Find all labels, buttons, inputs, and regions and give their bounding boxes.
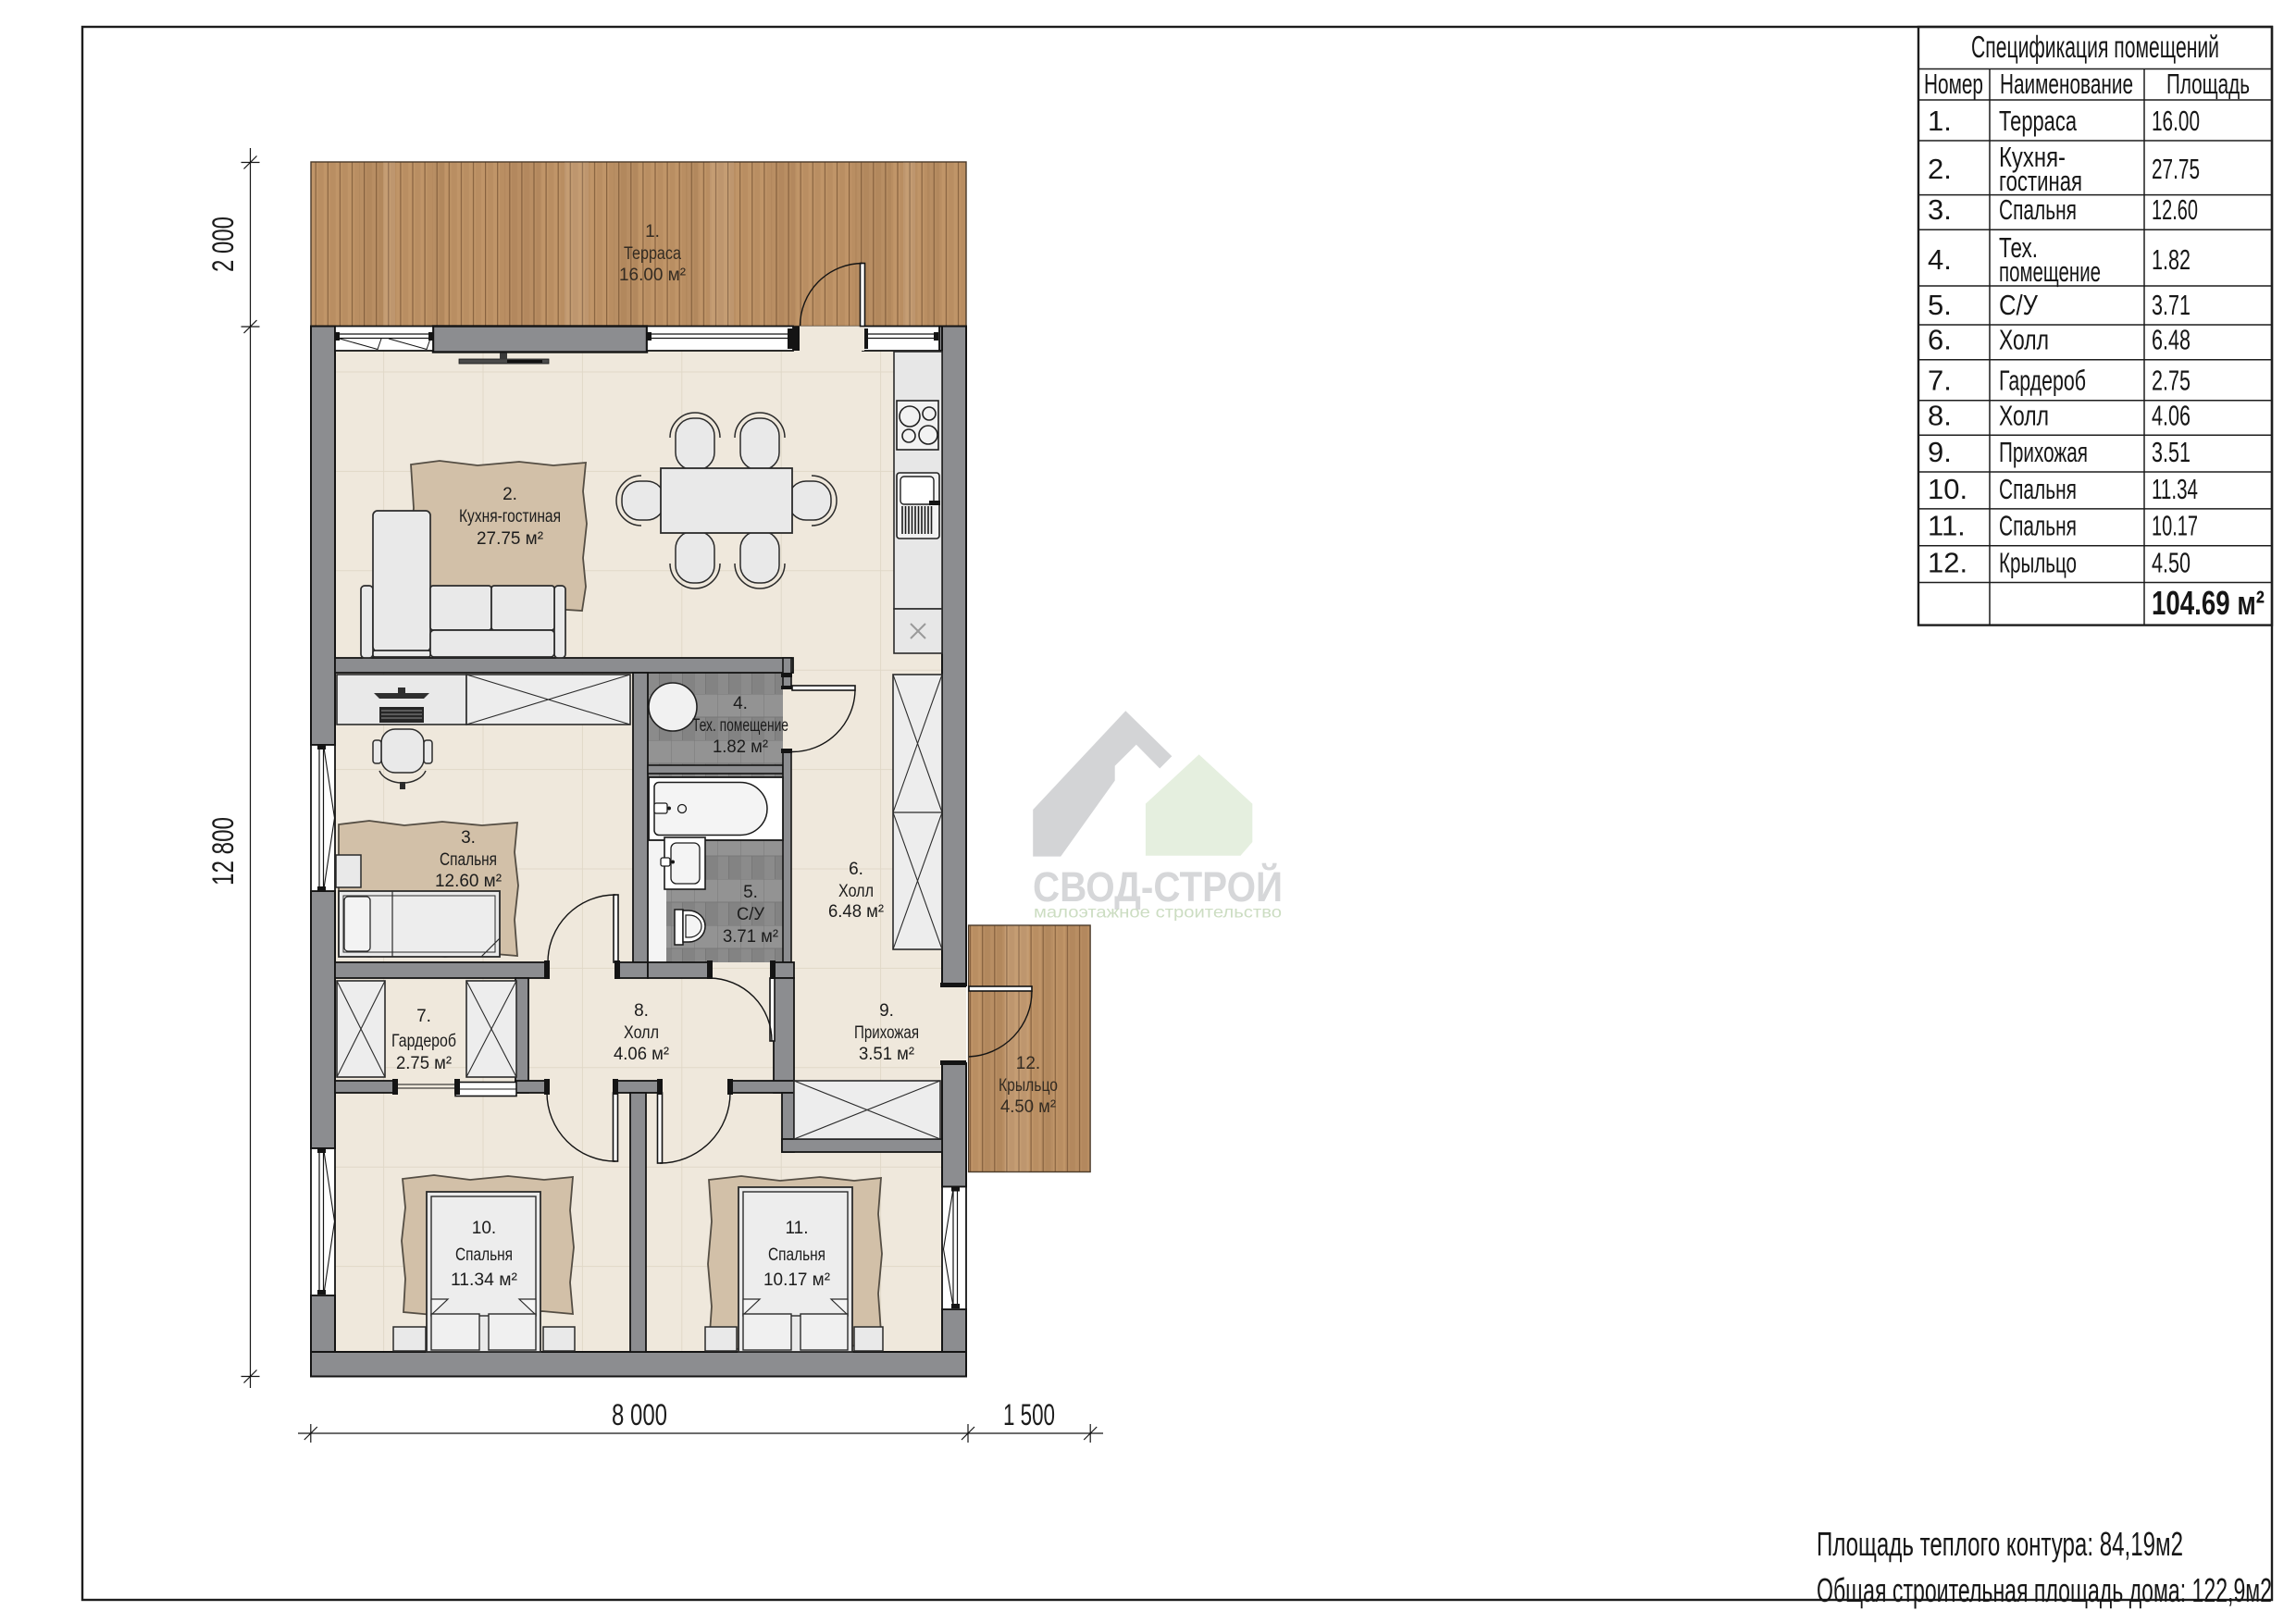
svg-text:Холл: Холл — [838, 882, 874, 901]
svg-text:5.: 5. — [743, 883, 758, 902]
svg-text:16.00: 16.00 — [2152, 105, 2200, 137]
svg-text:Холл: Холл — [1999, 399, 2049, 431]
svg-text:1.: 1. — [1928, 105, 1952, 137]
svg-text:2.75 м²: 2.75 м² — [396, 1054, 452, 1073]
svg-text:16.00 м²: 16.00 м² — [619, 266, 686, 285]
svg-text:Терраса: Терраса — [624, 244, 681, 264]
svg-text:Спальня: Спальня — [455, 1245, 513, 1265]
svg-text:6.48 м²: 6.48 м² — [828, 902, 884, 922]
svg-text:Общая строительная площадь дом: Общая строительная площадь дома: 122,9м2 — [1817, 1571, 2272, 1609]
svg-text:9.: 9. — [1928, 436, 1952, 468]
svg-text:11.34 м²: 11.34 м² — [451, 1270, 517, 1290]
svg-text:4.50 м²: 4.50 м² — [1000, 1097, 1056, 1117]
svg-text:Прихожая: Прихожая — [1999, 436, 2088, 468]
svg-text:6.: 6. — [849, 860, 863, 879]
svg-text:12.60 м²: 12.60 м² — [435, 872, 502, 891]
svg-text:4.06 м²: 4.06 м² — [614, 1045, 669, 1064]
svg-text:2.75: 2.75 — [2152, 365, 2191, 397]
svg-text:4.50: 4.50 — [2152, 547, 2191, 579]
svg-text:9.: 9. — [879, 1001, 894, 1021]
svg-text:Крыльцо: Крыльцо — [999, 1076, 1058, 1096]
svg-text:С/У: С/У — [737, 905, 765, 924]
svg-text:3.51: 3.51 — [2152, 436, 2191, 468]
svg-text:С/У: С/У — [1999, 289, 2038, 321]
svg-text:6.48: 6.48 — [2152, 324, 2191, 356]
svg-text:7.: 7. — [1928, 365, 1952, 397]
svg-text:Холл: Холл — [1999, 324, 2049, 356]
svg-text:гостиная: гостиная — [1999, 165, 2082, 197]
svg-text:12 800: 12 800 — [206, 817, 240, 886]
svg-text:помещение: помещение — [1999, 255, 2101, 288]
svg-text:10.17: 10.17 — [2152, 510, 2198, 542]
svg-text:11.: 11. — [785, 1219, 808, 1238]
svg-text:Терраса: Терраса — [1999, 105, 2078, 137]
svg-text:Площадь: Площадь — [2166, 68, 2250, 100]
svg-text:Кухня-гостиная: Кухня-гостиная — [459, 507, 561, 527]
svg-text:4.: 4. — [733, 694, 748, 713]
svg-text:12.60: 12.60 — [2152, 193, 2198, 226]
svg-text:3.: 3. — [461, 828, 476, 848]
svg-text:2.: 2. — [503, 485, 517, 504]
svg-text:3.71: 3.71 — [2152, 289, 2191, 321]
svg-text:Номер: Номер — [1924, 68, 1983, 100]
svg-text:12.: 12. — [1928, 547, 1967, 579]
svg-text:5.: 5. — [1928, 289, 1952, 321]
svg-text:2.: 2. — [1928, 153, 1952, 185]
svg-text:Холл: Холл — [624, 1023, 659, 1043]
svg-text:Спальня: Спальня — [1999, 193, 2077, 226]
svg-text:1.: 1. — [645, 222, 660, 242]
svg-text:8 000: 8 000 — [612, 1398, 667, 1431]
svg-text:Наименование: Наименование — [2000, 68, 2133, 100]
svg-text:10.: 10. — [1928, 473, 1967, 505]
svg-text:6.: 6. — [1928, 324, 1952, 356]
svg-text:4.06: 4.06 — [2152, 399, 2191, 431]
svg-text:27.75 м²: 27.75 м² — [477, 529, 543, 549]
svg-text:1.82: 1.82 — [2152, 243, 2191, 276]
svg-text:12.: 12. — [1016, 1054, 1040, 1073]
svg-text:27.75: 27.75 — [2152, 153, 2200, 185]
svg-text:3.: 3. — [1928, 193, 1952, 226]
svg-text:малоэтажное строительство: малоэтажное строительство — [1034, 903, 1282, 922]
svg-text:Прихожая: Прихожая — [854, 1023, 919, 1043]
svg-text:Гардероб: Гардероб — [1999, 365, 2086, 397]
svg-text:2 000: 2 000 — [206, 217, 240, 272]
svg-text:10.: 10. — [472, 1219, 496, 1238]
svg-text:Спальня: Спальня — [768, 1245, 825, 1265]
svg-text:3.71 м²: 3.71 м² — [723, 927, 778, 947]
svg-text:11.34: 11.34 — [2152, 473, 2198, 505]
svg-text:1.82 м²: 1.82 м² — [713, 737, 768, 757]
svg-text:Гардероб: Гардероб — [391, 1032, 456, 1051]
svg-text:Спецификация помещений: Спецификация помещений — [1971, 30, 2219, 64]
svg-text:10.17 м²: 10.17 м² — [763, 1270, 830, 1290]
svg-text:3.51 м²: 3.51 м² — [859, 1045, 914, 1064]
svg-text:Тех. помещение: Тех. помещение — [692, 716, 788, 736]
svg-text:8.: 8. — [634, 1001, 649, 1021]
svg-text:Площадь теплого контура: 84,19: Площадь теплого контура: 84,19м2 — [1817, 1525, 2183, 1563]
svg-text:11.: 11. — [1928, 510, 1966, 542]
svg-text:4.: 4. — [1928, 243, 1952, 276]
svg-text:Спальня: Спальня — [440, 850, 497, 870]
svg-text:7.: 7. — [416, 1007, 431, 1026]
svg-text:Спальня: Спальня — [1999, 510, 2077, 542]
svg-text:104.69 м²: 104.69 м² — [2152, 584, 2265, 622]
svg-text:8.: 8. — [1928, 399, 1952, 431]
svg-text:1 500: 1 500 — [1003, 1398, 1055, 1431]
svg-text:Крыльцо: Крыльцо — [1999, 547, 2077, 579]
svg-text:Спальня: Спальня — [1999, 473, 2077, 505]
